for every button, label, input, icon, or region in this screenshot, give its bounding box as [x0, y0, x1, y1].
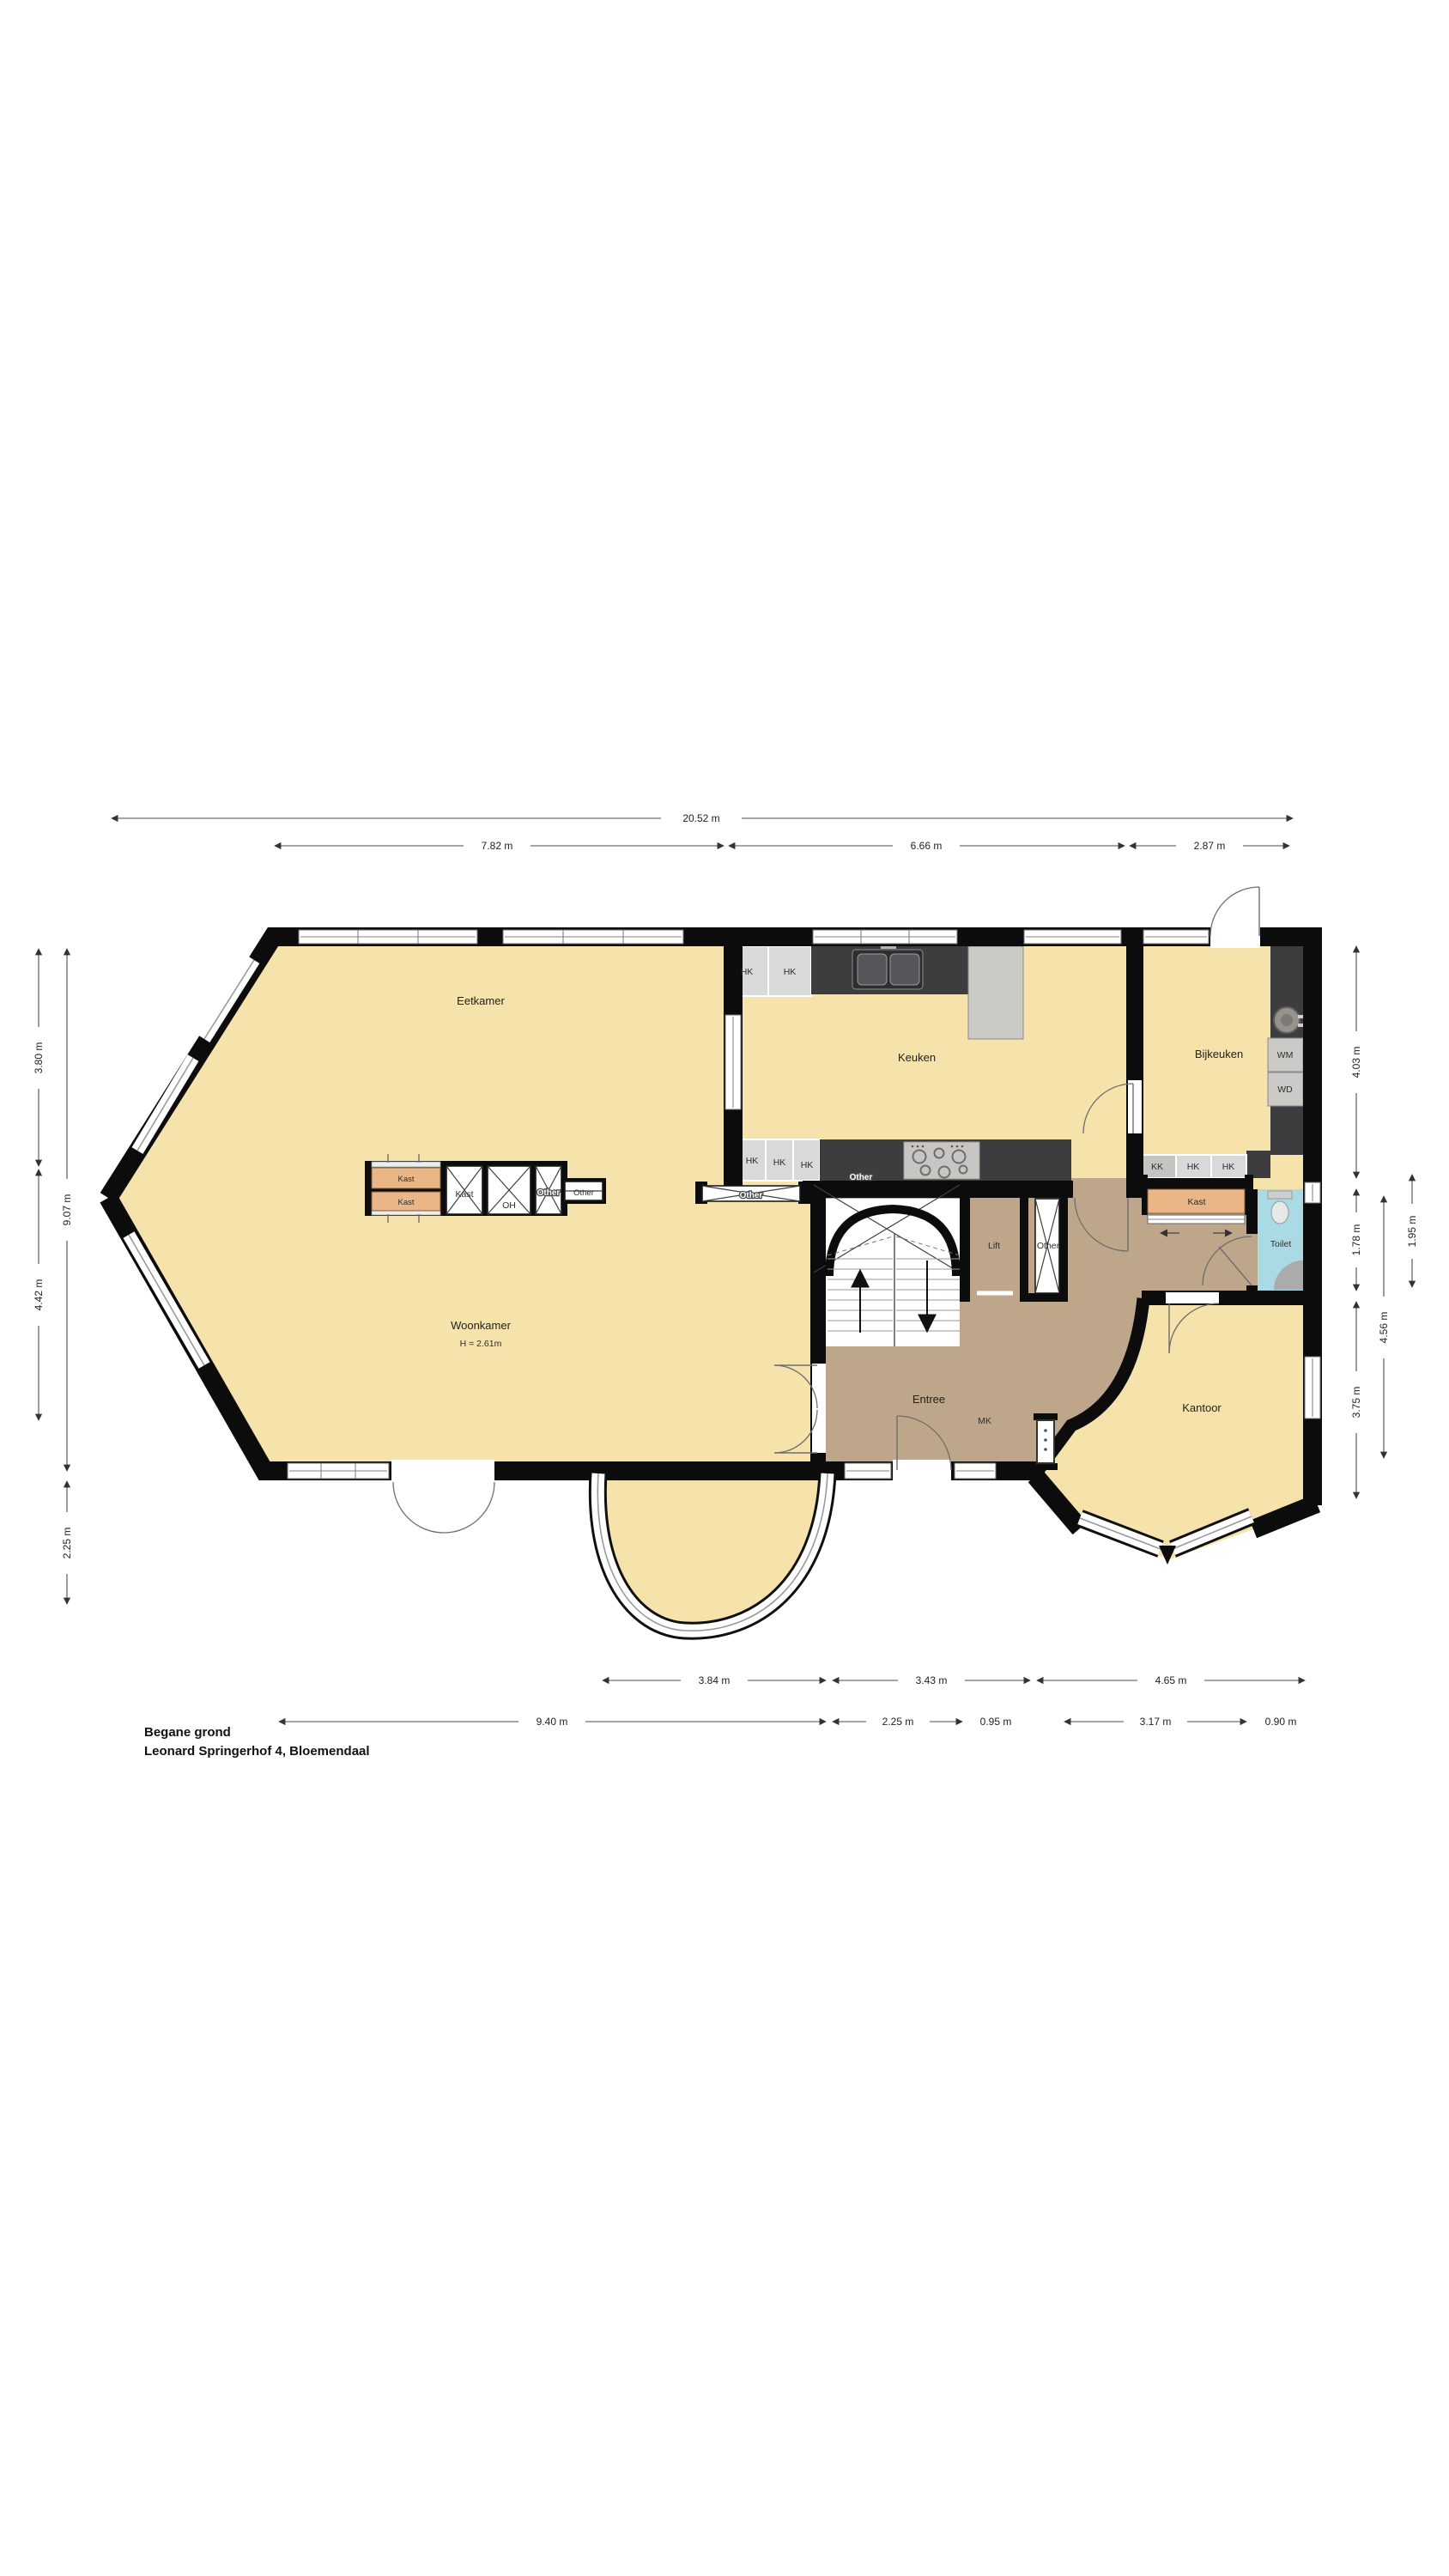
- title-block: Begane grond Leonard Springerhof 4, Bloe…: [144, 1725, 370, 1759]
- keuken-label: Keuken: [898, 1051, 936, 1064]
- dim-178: 1.78 m: [1350, 1224, 1362, 1256]
- door-opening: [1073, 1182, 1126, 1196]
- shaft-other-label: Other: [1037, 1241, 1060, 1251]
- other-label: Other: [850, 1173, 873, 1182]
- toilet-bowl-icon: [1271, 1201, 1288, 1224]
- hk-label: HK: [1187, 1162, 1200, 1172]
- woonkamer-height-label: H = 2.61m: [460, 1339, 502, 1349]
- hk-label: HK: [801, 1160, 814, 1170]
- hk-label: HK: [741, 967, 754, 977]
- entrance-door-opening: [893, 1460, 951, 1482]
- toilet-tank: [1268, 1191, 1292, 1199]
- dim-384: 3.84 m: [699, 1674, 731, 1686]
- dim-2052: 20.52 m: [682, 812, 719, 824]
- door-opening: [1166, 1292, 1219, 1303]
- french-door-opening: [391, 1460, 494, 1482]
- eetkamer-label: Eetkamer: [457, 994, 505, 1007]
- sink-basin: [890, 954, 919, 985]
- kast-label: Kast: [397, 1198, 414, 1207]
- hk-label: HK: [746, 1156, 759, 1166]
- dim-317: 3.17 m: [1140, 1716, 1172, 1728]
- dim-195: 1.95 m: [1406, 1216, 1418, 1248]
- dimensions-bottom: 3.84 m 3.43 m 4.65 m 9.40 m 2.25 m 0.95 …: [279, 1673, 1310, 1728]
- tall-appliance: [968, 946, 1023, 1039]
- toilet-label: Toilet: [1270, 1239, 1292, 1249]
- dim-465: 4.65 m: [1155, 1674, 1187, 1686]
- floorplan-page: Eetkamer Keuken Bijkeuken Woonkamer H = …: [0, 0, 1449, 2576]
- dim-343: 3.43 m: [916, 1674, 948, 1686]
- wd-label: WD: [1277, 1084, 1293, 1095]
- kast-label: Kast: [455, 1189, 473, 1200]
- kk-label: KK: [1151, 1162, 1163, 1172]
- bijkeuken-counter-corner: [1246, 1151, 1270, 1178]
- dim-225b: 2.25 m: [882, 1716, 914, 1728]
- dim-403: 4.03 m: [1350, 1047, 1362, 1078]
- dim-940: 9.40 m: [537, 1716, 568, 1728]
- hk-label: HK: [784, 967, 797, 977]
- dim-782: 7.82 m: [482, 840, 513, 852]
- lift-label: Lift: [988, 1241, 1000, 1251]
- woonkamer-label: Woonkamer: [451, 1319, 512, 1332]
- dim-907: 9.07 m: [61, 1194, 73, 1226]
- dimensions-left: 3.80 m 4.42 m 9.07 m 2.25 m: [32, 949, 74, 1604]
- hk-label: HK: [773, 1157, 786, 1168]
- dim-095: 0.95 m: [980, 1716, 1012, 1728]
- dim-225l: 2.25 m: [61, 1528, 73, 1559]
- mk-fixture: [1034, 1413, 1058, 1470]
- other-label: Other: [573, 1188, 594, 1198]
- hall-kast-label: Kast: [1187, 1197, 1205, 1207]
- sink-basin: [858, 954, 887, 985]
- dim-375: 3.75 m: [1350, 1387, 1362, 1419]
- dim-456: 4.56 m: [1378, 1312, 1390, 1344]
- door-opening: [1210, 927, 1260, 948]
- bijkeuken-label: Bijkeuken: [1195, 1048, 1243, 1060]
- entree-label: Entree: [912, 1393, 945, 1406]
- dimensions-right: 4.03 m 1.78 m 3.75 m 4.56 m 1.95 m: [1349, 946, 1419, 1498]
- dim-666: 6.66 m: [911, 840, 943, 852]
- floor-title: Begane grond: [144, 1725, 231, 1740]
- kast-label: Kast: [397, 1175, 414, 1184]
- door-opening: [1128, 1080, 1142, 1133]
- door-opening: [812, 1364, 826, 1453]
- kantoor-label: Kantoor: [1182, 1401, 1222, 1414]
- floorplan-drawing: Eetkamer Keuken Bijkeuken Woonkamer H = …: [0, 0, 1449, 2576]
- mk-label: MK: [978, 1416, 991, 1426]
- dim-090: 0.90 m: [1265, 1716, 1297, 1728]
- dimensions-top: 20.52 m 7.82 m 6.66 m 2.87 m: [112, 811, 1293, 853]
- dim-380: 3.80 m: [33, 1042, 45, 1074]
- oh-label: OH: [502, 1200, 516, 1211]
- address-title: Leonard Springerhof 4, Bloemendaal: [144, 1744, 370, 1759]
- wm-label: WM: [1277, 1050, 1294, 1060]
- door-opening: [1246, 1234, 1258, 1285]
- stairwell: [814, 1185, 960, 1346]
- dim-442: 4.42 m: [33, 1279, 45, 1311]
- other-label: Other: [740, 1191, 763, 1200]
- other-label: Other: [537, 1188, 561, 1198]
- dim-287: 2.87 m: [1194, 840, 1226, 852]
- hk-label: HK: [1222, 1162, 1235, 1172]
